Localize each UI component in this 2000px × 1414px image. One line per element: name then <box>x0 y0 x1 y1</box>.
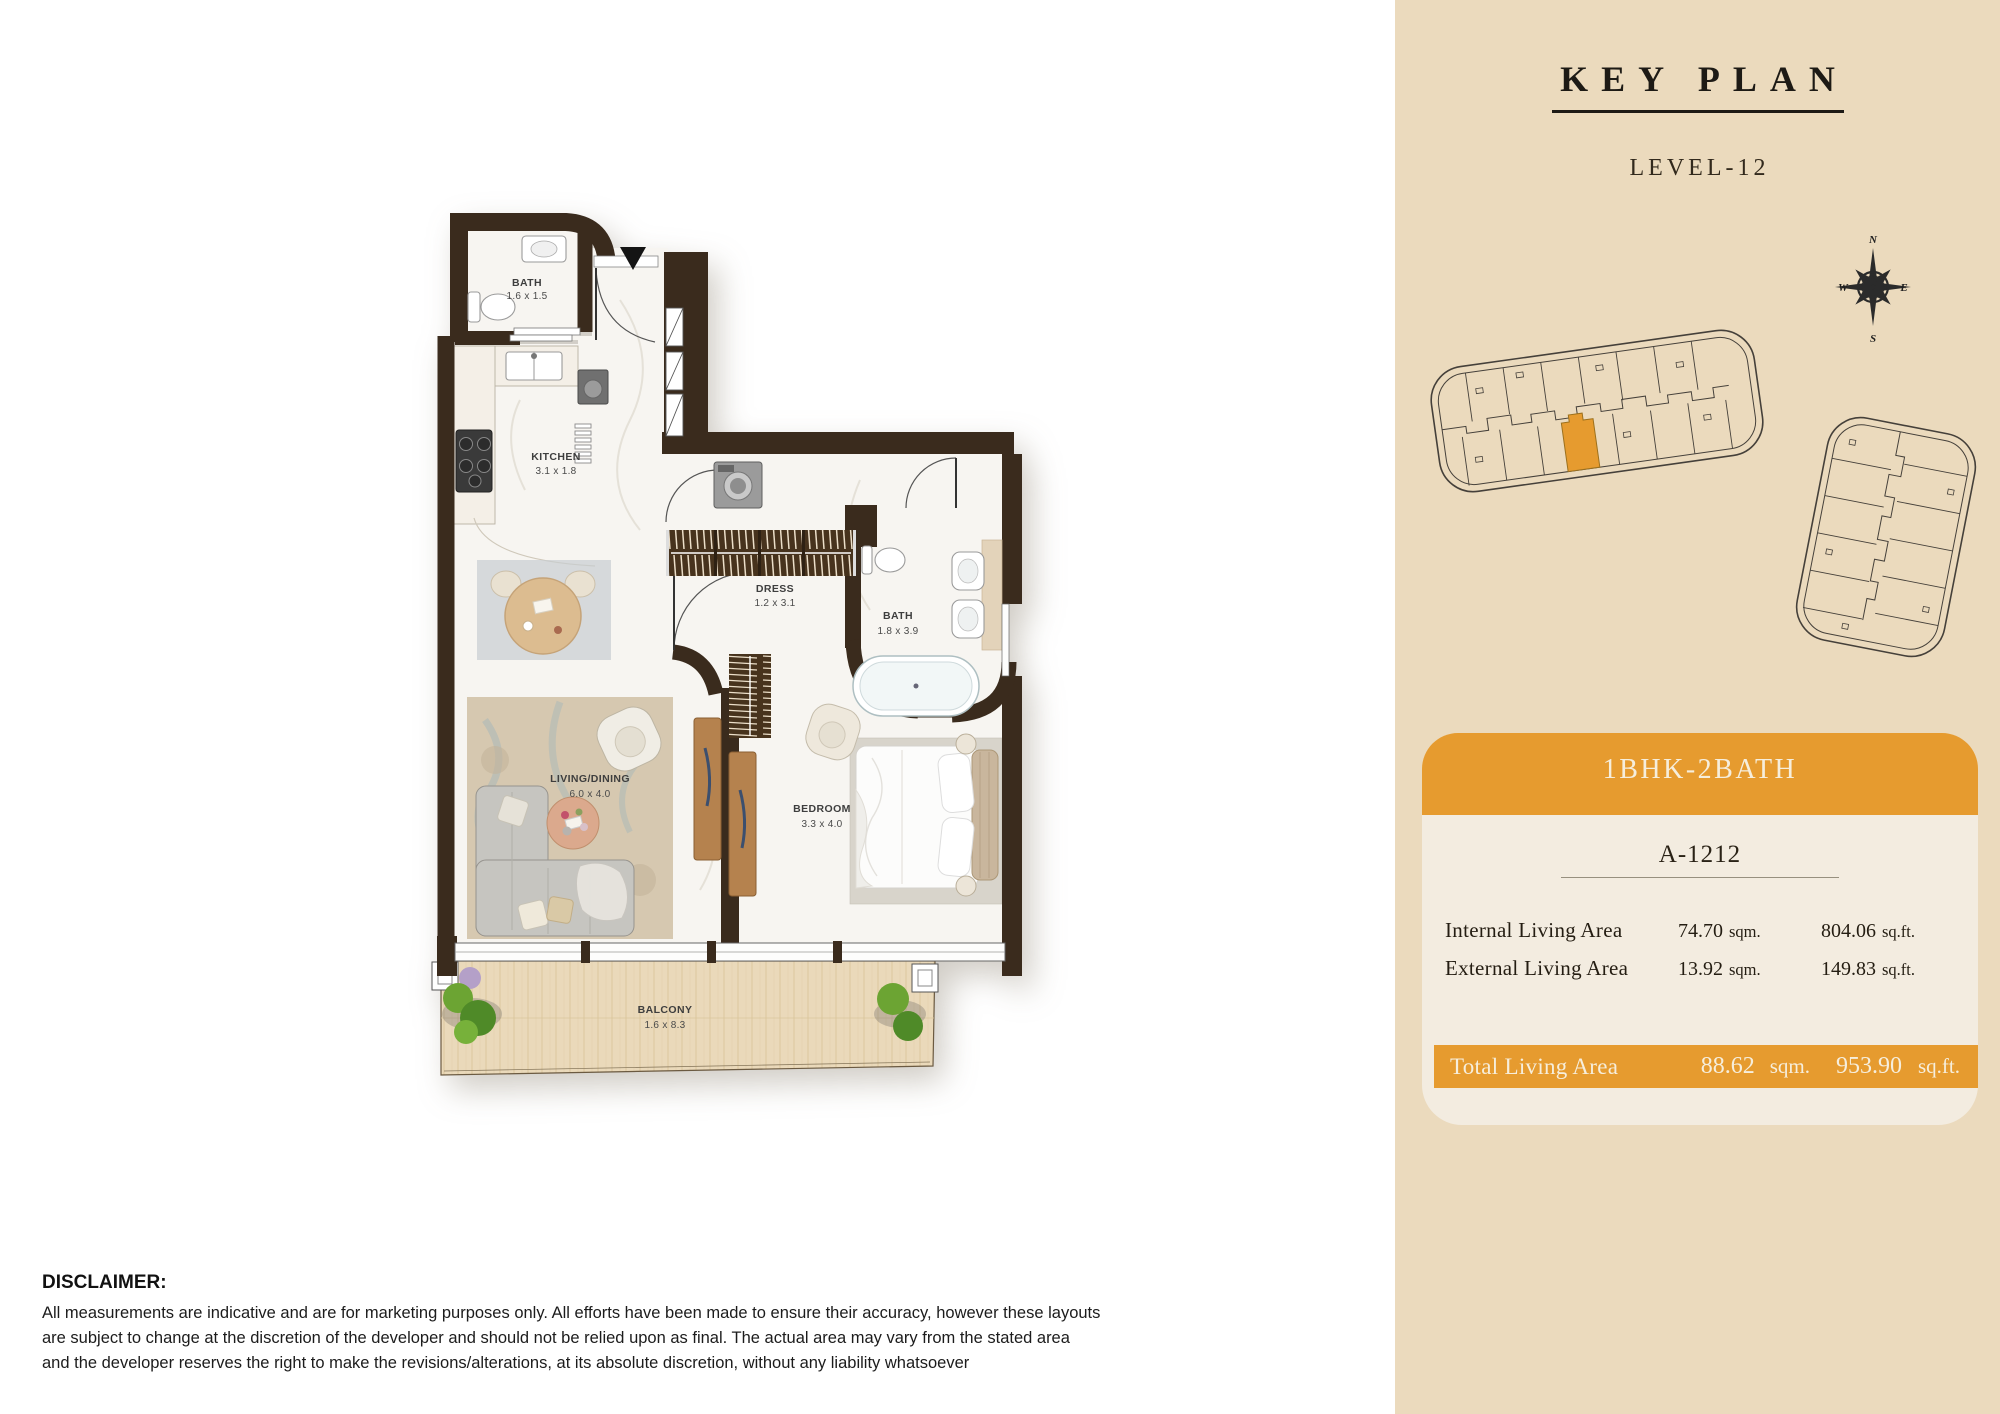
key-plan-title: KEY PLAN <box>1395 58 2000 100</box>
windows <box>455 941 1005 963</box>
total-sqm-value: 88.62 <box>1701 1053 1755 1080</box>
room-dims-living: 6.0 x 4.0 <box>569 789 610 800</box>
room-label-bedroom: BEDROOM <box>793 803 851 815</box>
disclaimer-line: All measurements are indicative and are … <box>42 1301 1162 1326</box>
compass-e: E <box>1899 282 1907 294</box>
room-label-balcony: BALCONY <box>638 1004 693 1016</box>
room-label-bath1: BATH <box>512 277 542 289</box>
key-plan-graphics: N W E S <box>1395 200 2000 700</box>
building-a-keyplan <box>1427 326 1767 496</box>
room-dims-balcony: 1.6 x 8.3 <box>644 1020 685 1031</box>
room-dims-bath1: 1.6 x 1.5 <box>506 291 547 302</box>
room-label-living: LIVING/DINING <box>550 773 630 785</box>
title-underline <box>1552 110 1844 113</box>
row-sqft-value: 149.83 <box>1781 958 1876 981</box>
decor-round-2 <box>956 876 976 896</box>
room-label-kitchen: KITCHEN <box>531 451 580 463</box>
disclaimer-heading: DISCLAIMER: <box>42 1272 1162 1294</box>
room-dims-bath2: 1.8 x 3.9 <box>877 626 918 637</box>
disclaimer-line: are subject to change at the discretion … <box>42 1326 1162 1351</box>
room-label-bath2: BATH <box>883 610 913 622</box>
total-area-bar: Total Living Area 88.62 sqm. 953.90 sq.f… <box>1434 1045 1978 1088</box>
throw-blanket <box>576 863 627 921</box>
compass-icon: N W E S <box>1835 234 1911 345</box>
compass-w: W <box>1838 282 1849 294</box>
total-label: Total Living Area <box>1450 1054 1618 1080</box>
total-sqft-unit: sq.ft. <box>1918 1054 1960 1079</box>
disclaimer-line: and the developer reserves the right to … <box>42 1351 1162 1376</box>
row-sqft-unit: sq.ft. <box>1876 922 1938 942</box>
floor-plan: BATH 1.6 x 1.5 KITCHEN 3.1 x 1.8 DRESS 1… <box>425 160 1035 1085</box>
building-b-keyplan <box>1791 412 1981 662</box>
balcony-pillar-right <box>912 964 938 992</box>
unit-number-underline <box>1561 877 1839 878</box>
key-plan-panel: KEY PLAN LEVEL-12 N W E S <box>1395 0 2000 1414</box>
balcony <box>432 961 938 1075</box>
bed <box>856 746 998 888</box>
row-sqft-unit: sq.ft. <box>1876 960 1938 980</box>
room-dims-dress: 1.2 x 3.1 <box>754 598 795 609</box>
row-sqm-unit: sqm. <box>1723 960 1781 980</box>
coat-rack <box>729 654 771 738</box>
unit-card-body: A-1212 Internal Living Area 74.70 sqm. 8… <box>1422 815 1978 1125</box>
total-sqm-unit: sqm. <box>1770 1054 1810 1079</box>
compass-s: S <box>1870 333 1876 345</box>
highlighted-unit <box>1560 412 1599 472</box>
area-row-internal: Internal Living Area 74.70 sqm. 804.06 s… <box>1422 918 1978 943</box>
compass-n: N <box>1868 234 1878 246</box>
row-sqm-value: 74.70 <box>1648 920 1723 943</box>
row-sqm-value: 13.92 <box>1648 958 1723 981</box>
row-label: Internal Living Area <box>1445 918 1648 943</box>
room-dims-bedroom: 3.3 x 4.0 <box>801 819 842 830</box>
page: BATH 1.6 x 1.5 KITCHEN 3.1 x 1.8 DRESS 1… <box>0 0 2000 1414</box>
room-label-dress: DRESS <box>756 583 794 595</box>
row-sqft-value: 804.06 <box>1781 920 1876 943</box>
unit-number: A-1212 <box>1422 841 1978 869</box>
area-rows: Internal Living Area 74.70 sqm. 804.06 s… <box>1422 918 1978 981</box>
closet-shafts <box>666 308 683 436</box>
total-sqft-value: 953.90 <box>1836 1053 1902 1080</box>
room-dims-kitchen: 3.1 x 1.8 <box>535 466 576 477</box>
row-label: External Living Area <box>1445 956 1648 981</box>
decor-round-1 <box>956 734 976 754</box>
unit-card: 1BHK-2BATH A-1212 Internal Living Area 7… <box>1422 733 1978 1125</box>
row-sqm-unit: sqm. <box>1723 922 1781 942</box>
dress-wardrobe-rail <box>666 530 856 576</box>
unit-type-header: 1BHK-2BATH <box>1422 733 1978 815</box>
washing-machine <box>714 462 762 508</box>
key-plan-level: LEVEL-12 <box>1395 155 2000 182</box>
unit-type: 1BHK-2BATH <box>1603 754 1798 786</box>
area-row-external: External Living Area 13.92 sqm. 149.83 s… <box>1422 956 1978 981</box>
disclaimer: DISCLAIMER: All measurements are indicat… <box>42 1272 1162 1376</box>
